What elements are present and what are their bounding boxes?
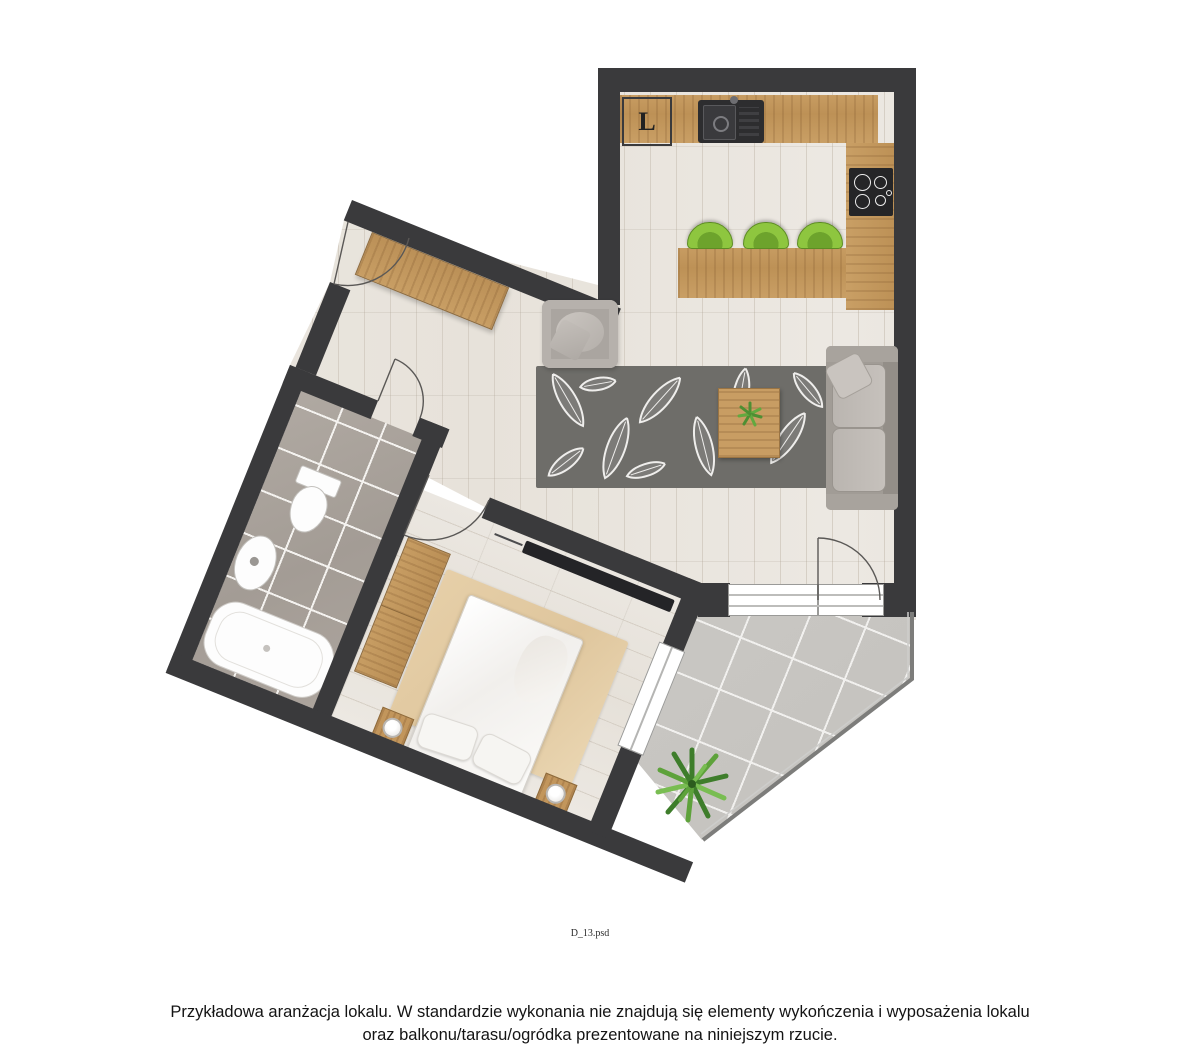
fridge-label: L xyxy=(638,107,655,137)
balcony-plant-icon xyxy=(650,742,734,826)
table-plant-icon xyxy=(736,400,764,428)
living-rug-icon xyxy=(536,366,830,488)
sofa-icon xyxy=(826,346,898,510)
window-jamb xyxy=(817,585,819,615)
balcony-door-window xyxy=(728,584,884,616)
wall-right xyxy=(894,68,916,617)
faucet-icon xyxy=(730,96,738,104)
wall-balcony-left-post xyxy=(698,583,730,617)
footer-line-2: oraz balkonu/tarasu/ogródka prezentowane… xyxy=(0,1024,1200,1047)
wall-top xyxy=(598,68,916,92)
sofa-armrest xyxy=(826,494,898,510)
floor-plan-page: { "floor_plan": { "fridge_label": "L", "… xyxy=(0,0,1200,1060)
armchair-icon xyxy=(542,300,618,368)
filename-label: D_13.psd xyxy=(520,928,660,939)
fridge-symbol: L xyxy=(622,97,672,146)
sofa-cushion xyxy=(832,428,886,492)
sink-drainboard xyxy=(739,107,759,136)
wall-kitchen-left xyxy=(598,68,620,305)
footer-disclaimer: Przykładowa aranżacja lokalu. W standard… xyxy=(0,1001,1200,1047)
kitchen-sink-icon xyxy=(698,100,764,143)
sink-basin xyxy=(703,105,736,140)
kitchen-island-icon xyxy=(678,248,846,298)
cooktop-icon xyxy=(849,168,893,216)
footer-line-1: Przykładowa aranżacja lokalu. W standard… xyxy=(0,1001,1200,1024)
